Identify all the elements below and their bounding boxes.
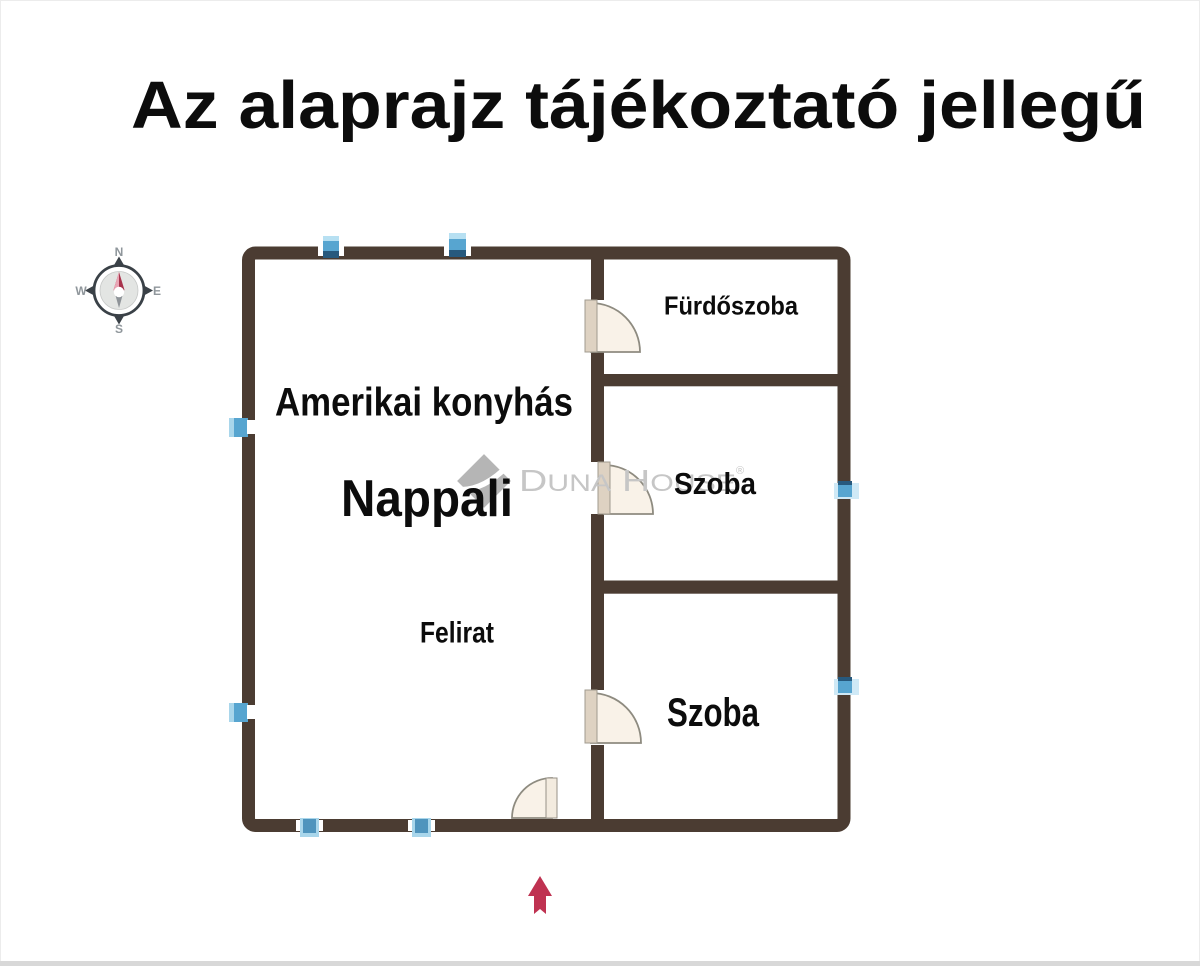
svg-text:E: E [153,284,161,298]
svg-text:Szoba: Szoba [667,691,760,735]
svg-text:Az alaprajz tájékoztató jelleg: Az alaprajz tájékoztató jellegű [131,68,1146,143]
svg-text:Szoba: Szoba [674,466,757,501]
svg-text:Felirat: Felirat [420,617,494,650]
svg-text:N: N [115,245,124,259]
svg-text:Amerikai konyhás: Amerikai konyhás [275,381,573,425]
svg-text:S: S [115,322,123,336]
svg-text:Nappali: Nappali [341,470,513,528]
svg-text:Fürdőszoba: Fürdőszoba [664,291,798,321]
svg-text:W: W [75,284,87,298]
